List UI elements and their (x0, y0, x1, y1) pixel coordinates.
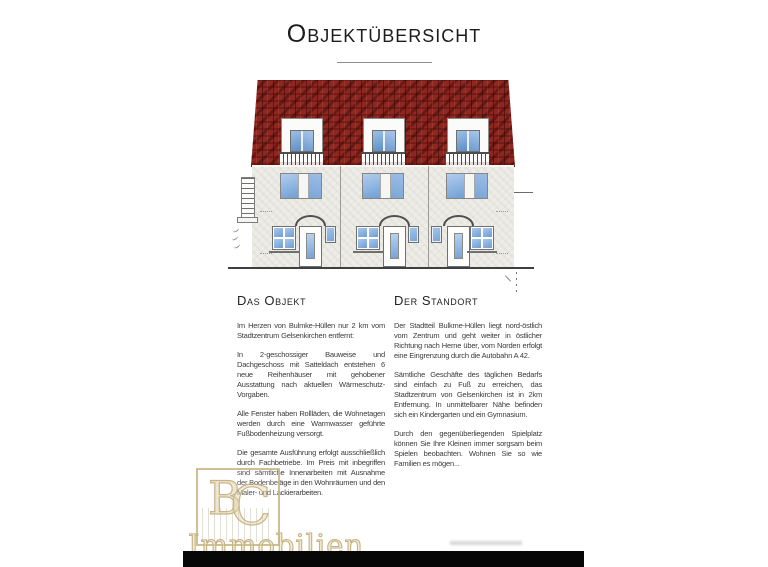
entrance-door (383, 226, 406, 267)
dormer-window-glass (290, 130, 314, 152)
side-window (431, 226, 442, 243)
entrance-door (299, 226, 322, 267)
window-sill (467, 251, 497, 253)
side-window (408, 226, 419, 243)
dormer-window-glass (456, 130, 480, 152)
paragraph: In 2-geschossiger Bauweise und Dachgesch… (237, 350, 385, 400)
ground-window (470, 226, 494, 250)
ground-line (228, 267, 534, 269)
ground-window (356, 226, 380, 250)
house-divider (428, 166, 429, 267)
page: Objektübersicht (0, 0, 768, 567)
dimension-tick (505, 275, 511, 281)
ground-window (272, 226, 296, 250)
paragraph: Sämtliche Geschäfte des täglichen Bedarf… (394, 370, 542, 420)
paragraph: Alle Fenster haben Rollläden, die Wohnet… (237, 409, 385, 439)
annotation-scribble (230, 234, 239, 242)
paragraph: Der Stadtteil Bulkme-Hüllen liegt nord-ö… (394, 321, 542, 361)
dormer-window (363, 118, 405, 155)
dimension-mark (496, 211, 508, 212)
house-divider (340, 166, 341, 267)
paragraph: Im Herzen von Bulmke-Hüllen nur 2 km vom… (237, 321, 385, 341)
annotation-scribble (231, 226, 240, 234)
dormer-window (281, 118, 323, 155)
watermark-logo: B C Immobilien (188, 466, 363, 564)
window-sill (269, 251, 299, 253)
side-annex-base (237, 217, 258, 223)
section-heading: Der Standort (394, 294, 542, 308)
upper-window (280, 173, 322, 199)
dimension-line (514, 192, 533, 193)
balcony-railing (279, 152, 323, 166)
dimension-mark (260, 253, 272, 254)
dormer-window-glass (372, 130, 396, 152)
entrance-door (447, 226, 470, 267)
paragraph: Durch den gegenüberliegenden Spielplatz … (394, 429, 542, 469)
side-annex (241, 177, 255, 220)
dimension-mark (260, 211, 272, 212)
side-window (325, 226, 336, 243)
annotation-scribble (232, 242, 241, 250)
dimension-mark (496, 253, 508, 254)
balcony-railing (361, 152, 405, 166)
scan-black-bar (183, 551, 584, 567)
section-heading: Das Objekt (237, 294, 385, 308)
upper-window (446, 173, 488, 199)
scan-smudge (450, 541, 522, 545)
dormer-window (447, 118, 489, 155)
window-sill (353, 251, 383, 253)
balcony-railing (445, 152, 489, 166)
dimension-dashes (516, 272, 517, 294)
upper-window (362, 173, 404, 199)
section-der-standort: Der Standort Der Stadtteil Bulkme-Hüllen… (394, 294, 542, 478)
